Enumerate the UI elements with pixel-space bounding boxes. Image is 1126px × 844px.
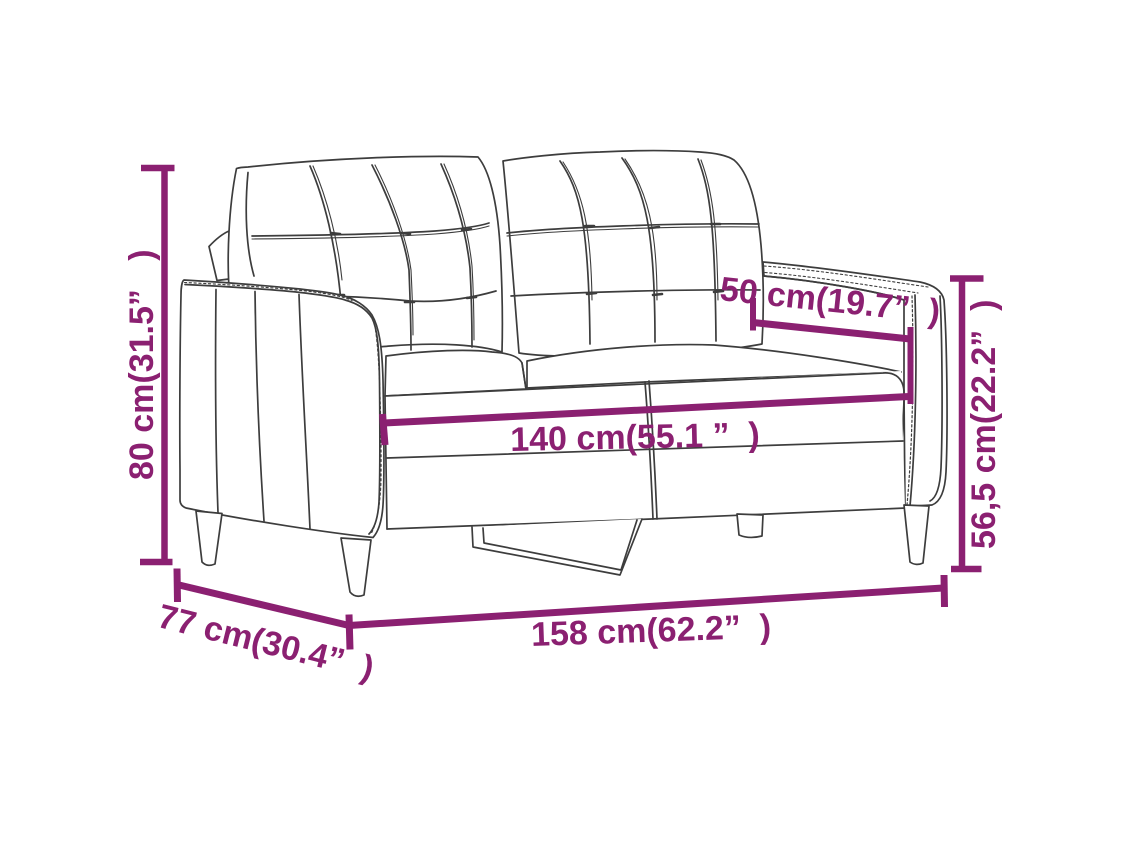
svg-text:56,5 cm(22.2” ): 56,5 cm(22.2” ) [965,300,1003,549]
svg-text:80 cm(31.5” ): 80 cm(31.5” ) [123,249,161,480]
svg-text:140 cm(55.1 ” ): 140 cm(55.1 ” ) [510,416,760,459]
